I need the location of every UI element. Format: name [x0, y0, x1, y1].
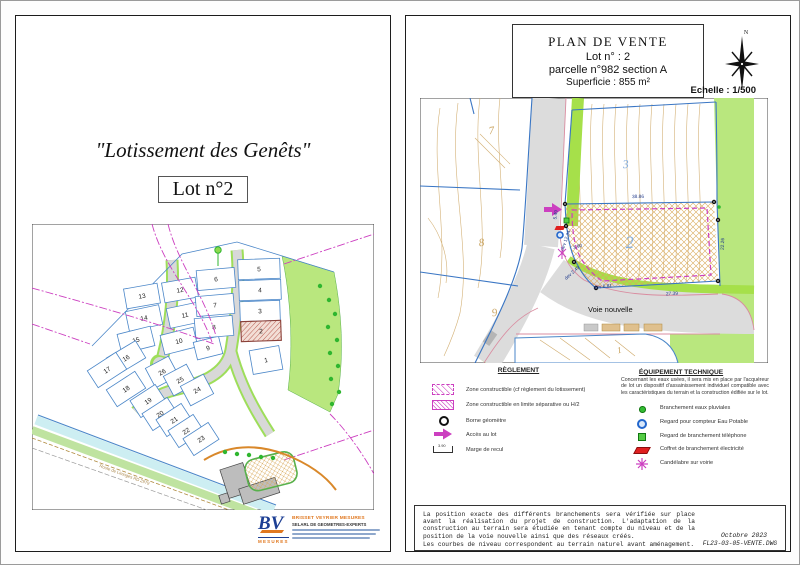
lot-parcel: 4: [239, 279, 282, 300]
map-label: Voie nouvelle: [588, 305, 633, 314]
zone-limite-icon: [432, 400, 454, 410]
lot-parcel: 1: [249, 346, 283, 375]
borne-marker-center: [565, 225, 566, 226]
footer-paragraph: Les courbes de niveau correspondent au t…: [423, 541, 723, 548]
map-label: 3: [621, 157, 629, 171]
legend-item: Coffret de branchement électricité: [660, 446, 744, 452]
plan-parcel: parcelle n°982 section A: [549, 64, 667, 76]
tree-dot: [336, 364, 340, 368]
logo-fineprint-line: [292, 533, 376, 535]
legend-item: Accès au lot: [466, 432, 496, 438]
scale-label: Echelle : 1/500: [691, 85, 756, 96]
legend-note: Concernant les eaux usées, il sera mis e…: [621, 377, 769, 396]
telephone-icon: [638, 433, 646, 441]
lot-number-label: 5: [257, 266, 261, 273]
borne-marker-center: [573, 261, 574, 262]
legend-equipement-title: ÉQUIPEMENT TECHNIQUE: [602, 369, 760, 376]
dimension-label: 38.86: [632, 194, 644, 200]
stormwater-symbol: [717, 205, 721, 209]
tree-dot: [318, 284, 322, 288]
tree-dot: [223, 450, 227, 454]
eaux-pluviales-icon: [639, 406, 646, 413]
borne-marker-center: [717, 280, 718, 281]
water-meter-symbol: [557, 232, 563, 238]
company-type: SELARL DE GEOMETRES-EXPERTS: [292, 522, 388, 527]
legend-item: Branchement eaux pluviales: [660, 405, 730, 411]
lot-parcel: 5: [238, 258, 281, 279]
plan-header-box: PLAN DE VENTE Lot n° : 2 parcelle n°982 …: [512, 24, 704, 98]
left-lot-box: Lot n°2: [158, 176, 249, 203]
surveyor-logo-block: BV MESURES BRISSET VEYRIER MESURES SELAR…: [258, 514, 390, 550]
lot-number-label: 4: [258, 287, 262, 294]
legend-item: Zone constructible (cf règlement du loti…: [466, 387, 585, 393]
legend-reglement-title: RÈGLEMENT: [426, 367, 611, 374]
logo-fineprint-line: [292, 529, 380, 531]
eau-potable-icon: [637, 419, 647, 429]
legend-item: Regard de branchement téléphone: [660, 433, 746, 439]
left-title: "Lotissement des Genêts": [16, 138, 390, 163]
borne-marker-center: [564, 203, 565, 204]
plan-lot: Lot n° : 2: [586, 51, 630, 63]
tree-dot: [335, 338, 339, 342]
lot-parcel: 8: [194, 315, 234, 338]
site-plan-map: 1312141115109678543211617182625241920212…: [32, 224, 374, 510]
plan-title: PLAN DE VENTE: [548, 34, 668, 50]
lot-number-label: 3: [258, 308, 262, 315]
legend-item: Borne géomètre: [466, 418, 506, 424]
borne-icon: [439, 416, 449, 426]
green-space: [282, 256, 341, 412]
zone-constructible-icon: [432, 384, 454, 395]
bv-logo-accent: [260, 530, 284, 533]
company-name: BRISSET VEYRIER MESURES: [292, 516, 388, 521]
electricite-icon: [633, 447, 651, 454]
page-left: "Lotissement des Genêts" Lot n°2: [15, 15, 391, 552]
tree-dot: [327, 298, 331, 302]
borne-marker-center: [713, 201, 714, 202]
tree-dot: [330, 402, 334, 406]
footer-date: Octobre 2023: [721, 532, 767, 539]
compass-rose: N: [720, 24, 764, 92]
tree-dot: [271, 456, 275, 460]
candelabre-icon: [635, 457, 649, 471]
compass-north-label: N: [744, 30, 749, 36]
lot-1-area: [515, 334, 678, 363]
lot-parcel: 2: [241, 320, 282, 341]
tree-dot: [235, 452, 239, 456]
footer-title-block: La position exacte des différents branch…: [414, 505, 786, 551]
logo-fineprint-line: [292, 537, 370, 539]
marge-value: 3.90: [438, 443, 446, 448]
tree-dot: [337, 390, 341, 394]
tree-dot: [247, 453, 251, 457]
company-info: BRISSET VEYRIER MESURES SELARL DE GEOMET…: [292, 516, 388, 539]
footer-filename: FL23-03-05-VENTE.DWG: [703, 540, 777, 547]
electric-box-symbol: [554, 226, 565, 230]
document-canvas: "Lotissement des Genêts" Lot n°2: [0, 0, 800, 565]
tree-dot: [333, 312, 337, 316]
lot-number-label: 2: [259, 328, 263, 335]
page-right: PLAN DE VENTE Lot n° : 2 parcelle n°982 …: [405, 15, 791, 552]
legend-item: Candélabre sur voirie: [660, 460, 713, 466]
tree-dot: [326, 325, 330, 329]
left-lot-box-wrap: Lot n°2: [16, 176, 390, 203]
tree-dot: [329, 377, 333, 381]
bv-logo-brand: MESURES: [258, 537, 289, 544]
dimension-label: 22.26: [720, 238, 726, 251]
legend-item: Regard pour compteur Eau Potable: [660, 419, 748, 425]
footer-paragraph: La position exacte des différents branch…: [423, 511, 695, 540]
lot-parcel: 7: [195, 293, 235, 316]
legend-item: Zone constructible en limite séparative …: [466, 402, 580, 408]
borne-marker-center: [717, 219, 718, 220]
tree-dot: [259, 455, 263, 459]
marge-recul-icon: 3.90: [433, 446, 453, 453]
telecom-symbol: [564, 218, 569, 223]
plan-area: Superficie : 855 m²: [566, 77, 650, 88]
sale-plan-map: 237891Voie nouvelle38.8627.3922.265.49de…: [420, 98, 768, 363]
lot-parcel: 3: [240, 300, 281, 321]
access-arrow-icon: [433, 428, 453, 440]
dimension-label: 27.39: [666, 291, 679, 298]
lot-parcel: 6: [196, 267, 236, 290]
tree-dot: [328, 351, 332, 355]
lot-2-hatch: [565, 202, 718, 288]
legend-item: Marge de recul: [466, 447, 503, 453]
